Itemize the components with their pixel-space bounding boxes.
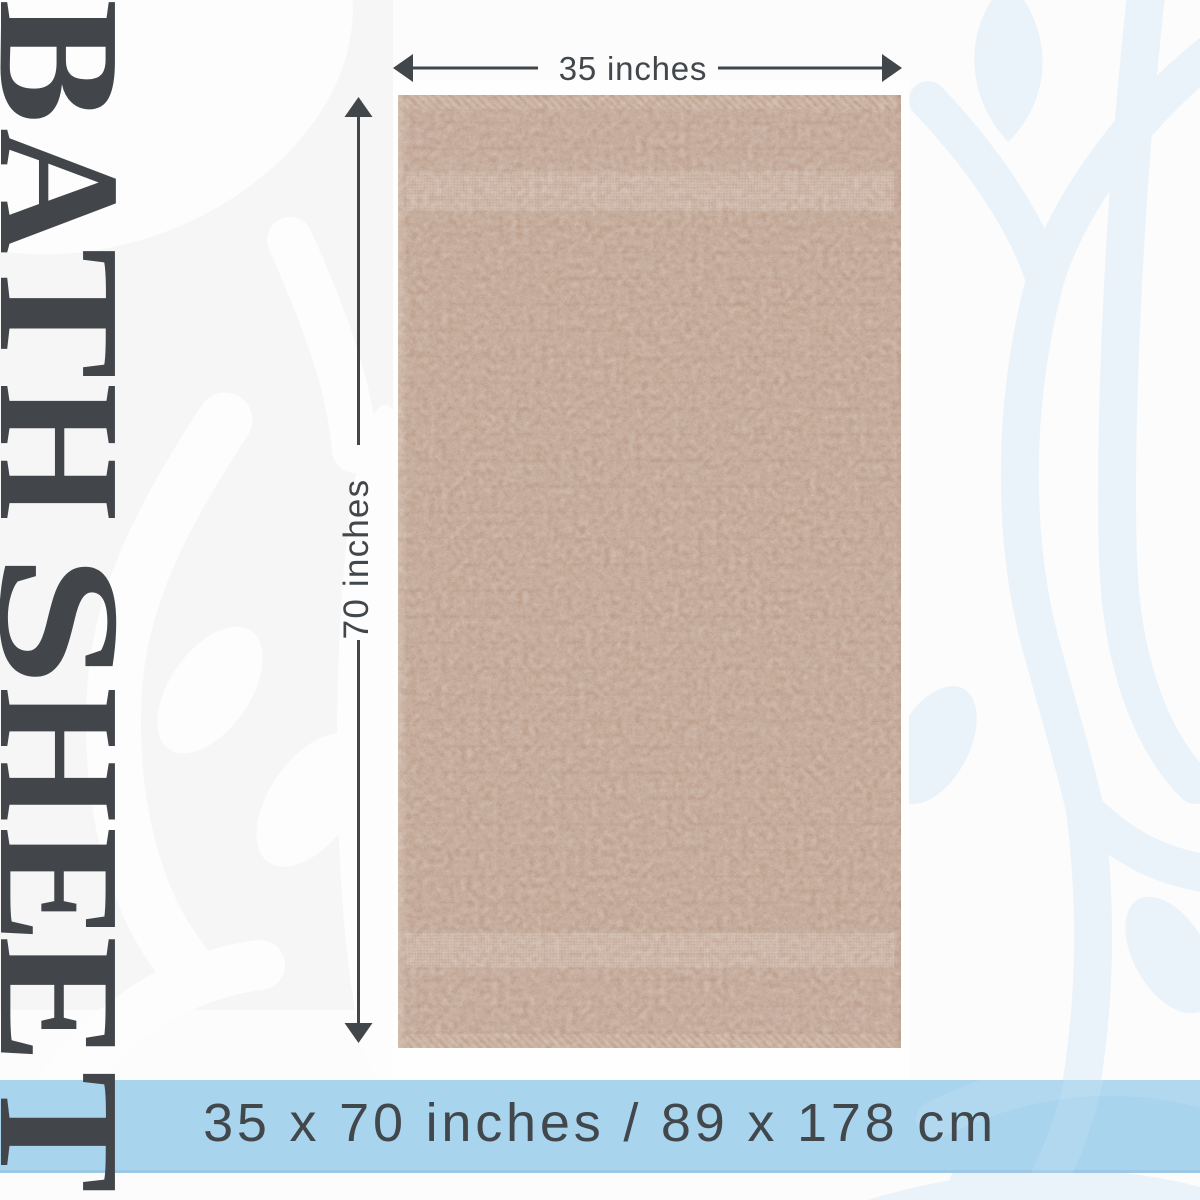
svg-text:A: A [0, 128, 156, 254]
svg-text:H: H [0, 687, 156, 822]
svg-text:T: T [0, 1071, 156, 1193]
svg-text:H: H [0, 383, 156, 521]
svg-text:E: E [0, 827, 156, 943]
svg-text:B: B [0, 0, 156, 124]
svg-text:E: E [0, 936, 156, 1064]
svg-text:S: S [0, 553, 156, 687]
svg-text:T: T [0, 248, 156, 379]
